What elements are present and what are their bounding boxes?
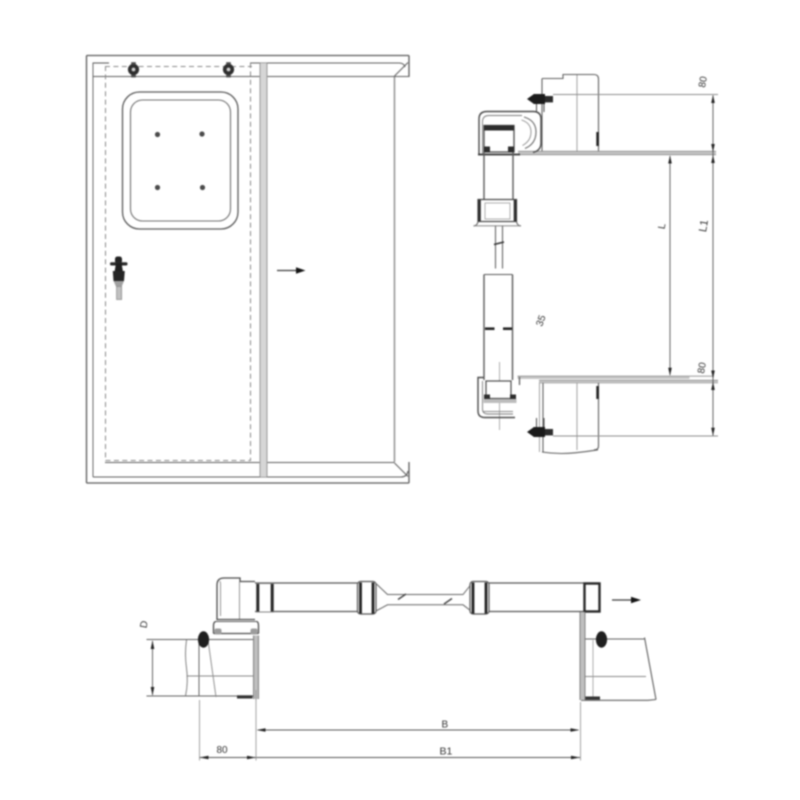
svg-text:B1: B1: [440, 746, 453, 758]
svg-text:D: D: [139, 620, 151, 629]
svg-text:35: 35: [534, 313, 548, 328]
svg-text:80: 80: [697, 75, 710, 88]
svg-text:B: B: [442, 720, 449, 731]
svg-text:L: L: [657, 222, 669, 230]
svg-text:L1: L1: [697, 219, 711, 233]
svg-text:80: 80: [217, 745, 229, 756]
svg-text:80: 80: [696, 361, 709, 374]
